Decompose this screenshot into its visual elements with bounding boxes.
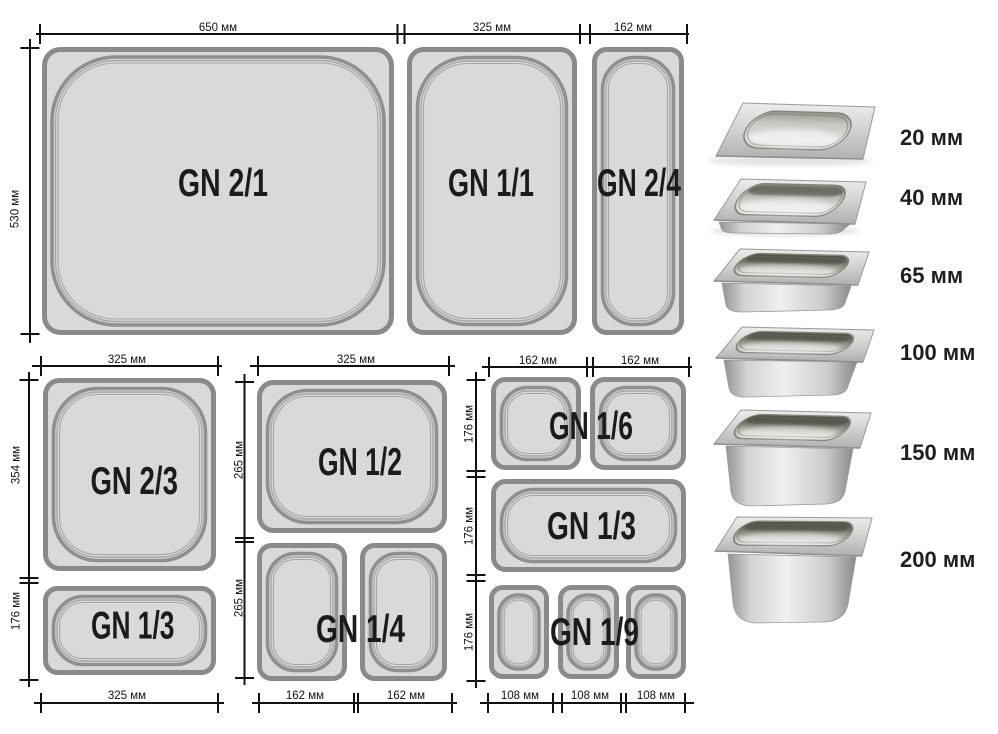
svg-text:108 мм: 108 мм	[571, 690, 609, 702]
svg-text:162 мм: 162 мм	[387, 690, 425, 702]
svg-text:162 мм: 162 мм	[519, 355, 557, 367]
svg-text:162 мм: 162 мм	[286, 690, 324, 702]
svg-text:325 мм: 325 мм	[108, 354, 146, 366]
svg-text:GN 1/6: GN 1/6	[549, 405, 633, 448]
svg-text:GN 1/1: GN 1/1	[448, 162, 534, 205]
svg-text:176 мм: 176 мм	[11, 592, 23, 630]
svg-text:65 мм: 65 мм	[900, 263, 963, 288]
svg-text:GN 1/2: GN 1/2	[318, 441, 402, 484]
svg-text:GN 2/4: GN 2/4	[597, 162, 681, 205]
svg-text:GN 1/9: GN 1/9	[550, 611, 639, 654]
svg-text:108 мм: 108 мм	[637, 690, 675, 702]
svg-text:108 мм: 108 мм	[501, 690, 539, 702]
svg-text:265 мм: 265 мм	[234, 441, 246, 479]
svg-text:530 мм: 530 мм	[10, 190, 22, 228]
svg-text:GN 1/3: GN 1/3	[547, 505, 636, 548]
svg-text:176 мм: 176 мм	[464, 405, 476, 443]
svg-text:325 мм: 325 мм	[108, 690, 146, 702]
svg-text:GN 2/3: GN 2/3	[90, 460, 178, 503]
svg-text:GN 1/3: GN 1/3	[91, 605, 175, 648]
svg-text:650 мм: 650 мм	[199, 22, 237, 34]
svg-text:GN 1/4: GN 1/4	[316, 608, 405, 651]
svg-text:162 мм: 162 мм	[621, 355, 659, 367]
svg-text:40 мм: 40 мм	[900, 185, 963, 210]
svg-text:176 мм: 176 мм	[464, 507, 476, 545]
svg-text:162 мм: 162 мм	[614, 22, 652, 34]
svg-text:GN 2/1: GN 2/1	[178, 162, 268, 205]
svg-text:20 мм: 20 мм	[900, 125, 963, 150]
svg-text:265 мм: 265 мм	[234, 579, 246, 617]
svg-text:325 мм: 325 мм	[473, 22, 511, 34]
svg-text:354 мм: 354 мм	[11, 446, 23, 484]
svg-text:176 мм: 176 мм	[464, 613, 476, 651]
svg-text:200 мм: 200 мм	[900, 547, 975, 572]
svg-text:325 мм: 325 мм	[337, 354, 375, 366]
svg-text:150 мм: 150 мм	[900, 440, 975, 465]
svg-text:100 мм: 100 мм	[900, 340, 975, 365]
